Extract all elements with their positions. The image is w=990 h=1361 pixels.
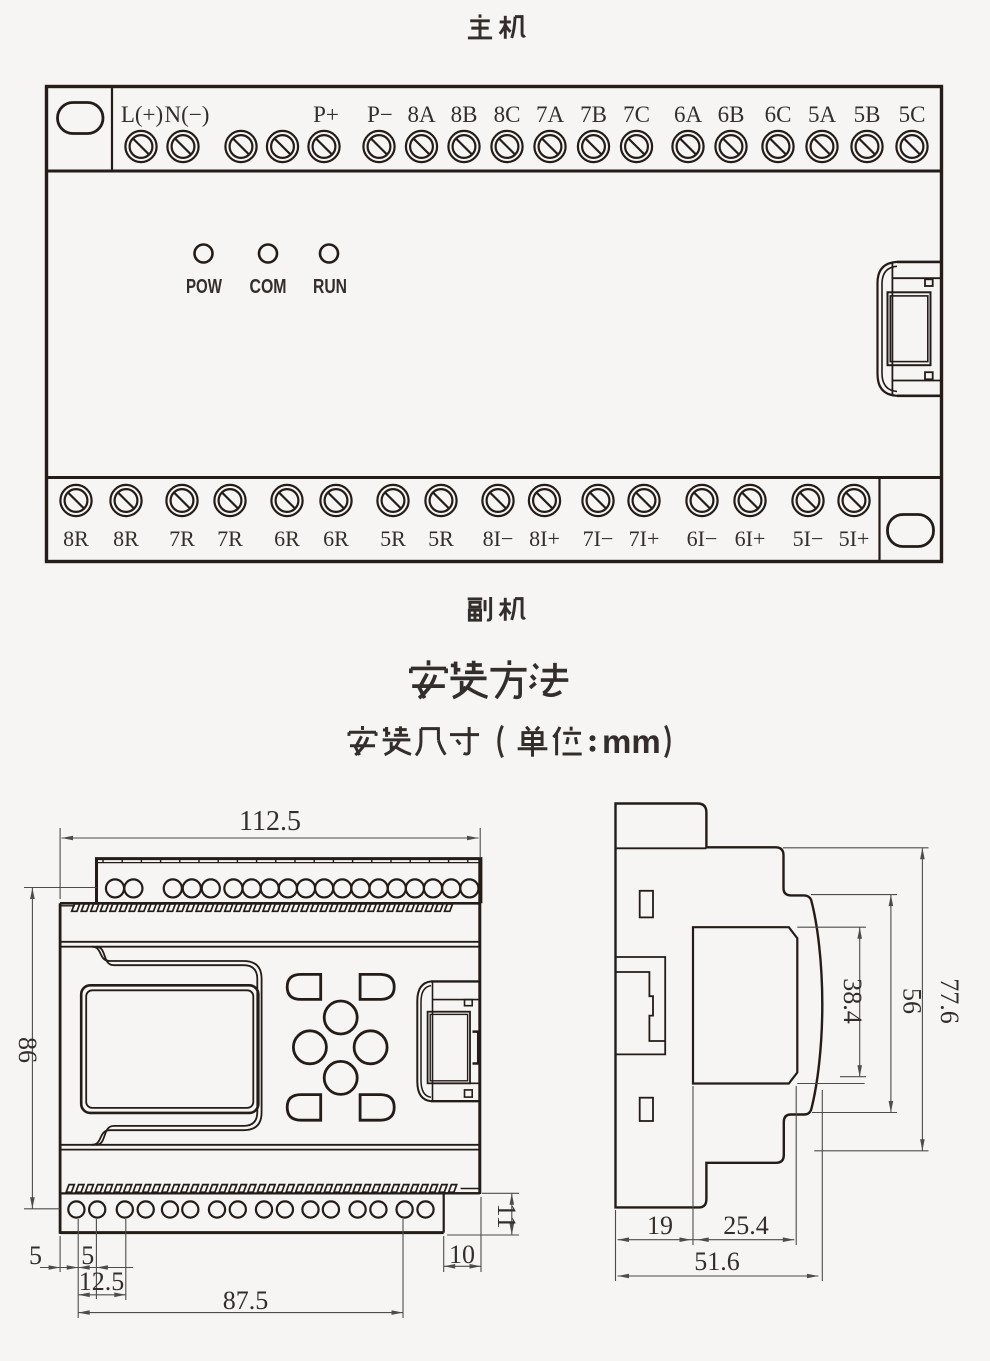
svg-text:86: 86 <box>13 1037 42 1063</box>
svg-text:8I+: 8I+ <box>529 526 560 551</box>
svg-text:5R: 5R <box>428 526 454 551</box>
svg-text:7I−: 7I− <box>583 526 614 551</box>
svg-text:P+: P+ <box>313 102 339 127</box>
svg-text:POW: POW <box>186 276 222 298</box>
svg-text:COM: COM <box>250 276 287 298</box>
svg-text:8C: 8C <box>494 102 521 127</box>
svg-text:7I+: 7I+ <box>629 526 660 551</box>
svg-text:11: 11 <box>492 1203 521 1228</box>
svg-text:8B: 8B <box>451 102 478 127</box>
svg-text:12.5: 12.5 <box>79 1267 125 1296</box>
svg-text:112.5: 112.5 <box>239 806 301 837</box>
svg-text:51.6: 51.6 <box>694 1247 740 1276</box>
svg-text:10: 10 <box>449 1240 475 1269</box>
svg-text:5I+: 5I+ <box>839 526 870 551</box>
svg-text:5B: 5B <box>854 102 881 127</box>
svg-text:7R: 7R <box>217 526 243 551</box>
svg-text:5C: 5C <box>899 102 926 127</box>
svg-text:L(+): L(+) <box>121 102 163 127</box>
svg-text:8R: 8R <box>113 526 139 551</box>
svg-text:7B: 7B <box>580 102 607 127</box>
svg-text:5R: 5R <box>380 526 406 551</box>
svg-text:6C: 6C <box>765 102 792 127</box>
svg-text:7R: 7R <box>169 526 195 551</box>
svg-text:8R: 8R <box>63 526 89 551</box>
svg-text:P−: P− <box>367 102 393 127</box>
svg-text:5: 5 <box>29 1241 42 1270</box>
svg-text:87.5: 87.5 <box>223 1286 269 1315</box>
svg-text:19: 19 <box>647 1211 673 1240</box>
svg-text:RUN: RUN <box>313 276 347 298</box>
svg-text:N(−): N(−) <box>165 102 210 127</box>
svg-text:25.4: 25.4 <box>723 1211 769 1240</box>
svg-text:mm: mm <box>602 723 661 760</box>
svg-text:7C: 7C <box>623 102 650 127</box>
svg-text:7A: 7A <box>536 102 565 127</box>
svg-text:5I−: 5I− <box>793 526 824 551</box>
svg-text:77.6: 77.6 <box>935 978 964 1024</box>
svg-text:5A: 5A <box>808 102 837 127</box>
svg-text:6I−: 6I− <box>687 526 718 551</box>
svg-text:38.4: 38.4 <box>838 978 867 1024</box>
svg-text:6B: 6B <box>718 102 745 127</box>
svg-text:6I+: 6I+ <box>735 526 766 551</box>
svg-text:8I−: 8I− <box>483 526 514 551</box>
svg-text:6R: 6R <box>274 526 300 551</box>
svg-text:6A: 6A <box>674 102 703 127</box>
svg-text:8A: 8A <box>407 102 436 127</box>
svg-text:6R: 6R <box>323 526 349 551</box>
svg-text:5: 5 <box>81 1241 94 1270</box>
